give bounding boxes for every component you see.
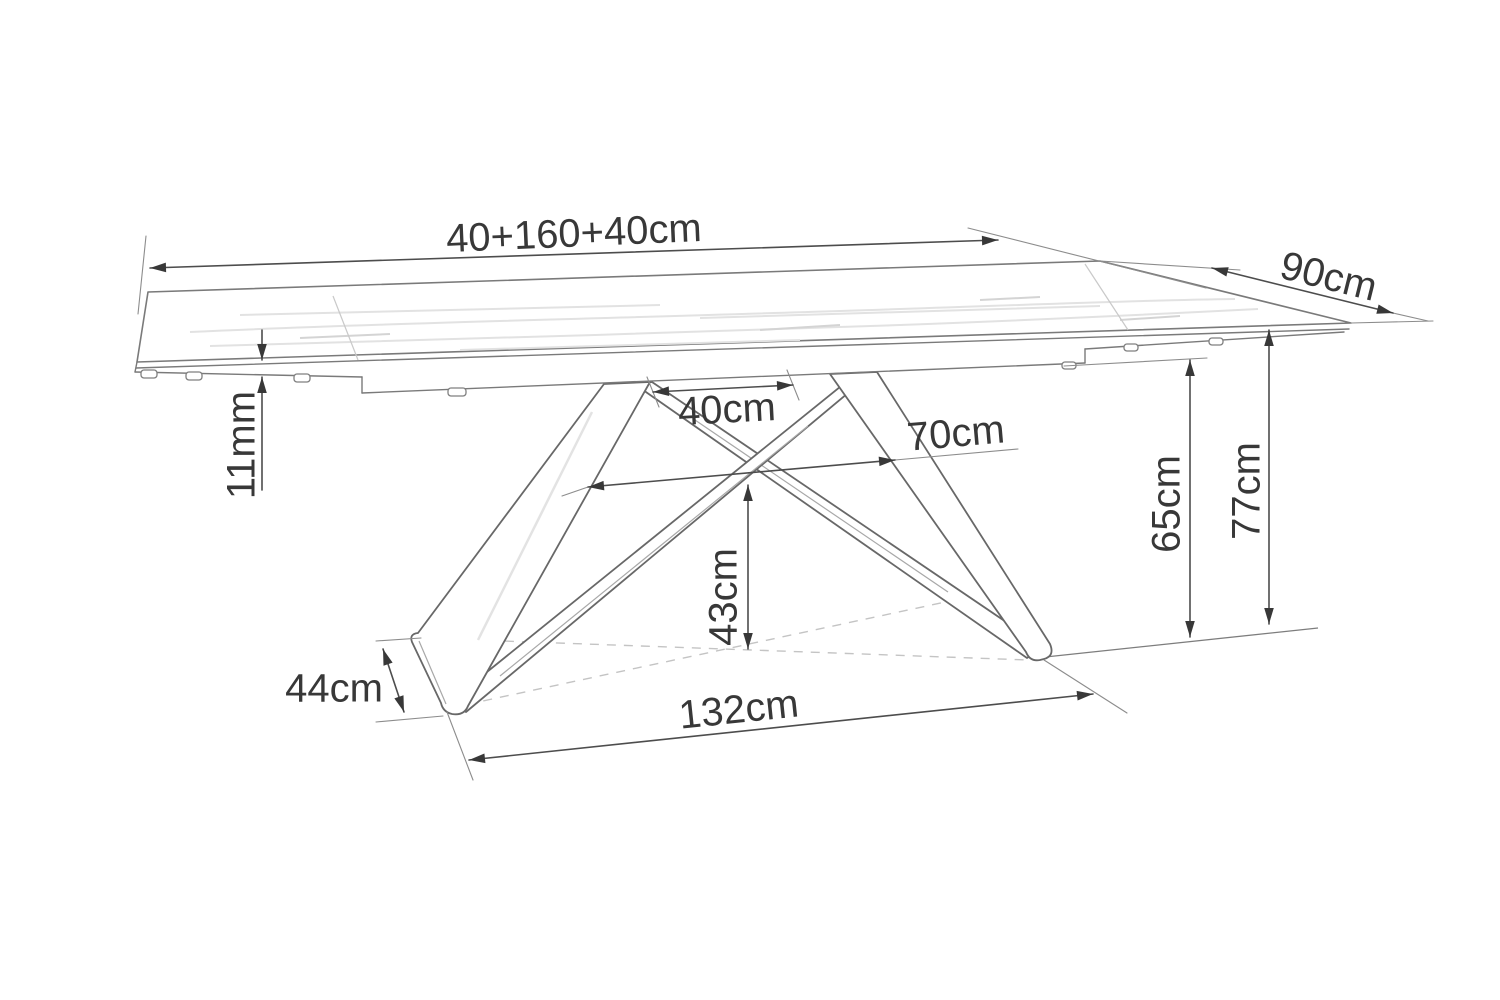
arrowhead-icon: [150, 263, 166, 273]
underside-tab: [1124, 344, 1138, 351]
arrowhead-icon: [1264, 608, 1274, 624]
dimension-label-table-height: 77cm: [1225, 442, 1269, 540]
arrowhead-icon: [257, 377, 267, 393]
arrowhead-icon: [383, 649, 393, 666]
dimension-label-foot-length: 44cm: [285, 667, 383, 711]
arrowhead-icon: [743, 485, 753, 501]
arrowhead-icon: [1077, 691, 1093, 701]
underside-tab: [448, 388, 466, 396]
extension-line: [376, 716, 443, 722]
dimension-label-leg-top-spread: 40cm: [677, 385, 777, 434]
underside-tab: [294, 374, 310, 382]
dimension-label-total-length: 40+160+40cm: [445, 206, 702, 261]
arrowhead-icon: [777, 381, 793, 391]
tabletop-surface: [137, 261, 1351, 362]
extension-line: [1351, 321, 1433, 323]
arrowhead-icon: [982, 236, 998, 246]
arrowhead-icon: [394, 695, 404, 712]
dimension-base-length: 132cm: [447, 660, 1127, 780]
table-dimension-drawing: 40+160+40cm90cm11mm40cm70cm43cm65cm77cm4…: [0, 0, 1500, 1000]
dimension-label-top-thickness: 11mm: [220, 391, 264, 499]
tabletop: [135, 261, 1351, 396]
arrowhead-icon: [1212, 267, 1229, 276]
drawing-canvas: 40+160+40cm90cm11mm40cm70cm43cm65cm77cm4…: [0, 0, 1500, 1000]
dimension-label-frame-height: 65cm: [1145, 455, 1189, 553]
dimension-frame-height: 65cm: [1064, 358, 1207, 637]
underside-tab: [1209, 338, 1223, 345]
extension-line: [1044, 660, 1127, 713]
floor-baseline: [1036, 628, 1318, 658]
left-leaf-underside: [135, 372, 362, 377]
dimension-label-depth: 90cm: [1276, 243, 1382, 309]
dimension-table-height: 77cm: [1225, 330, 1274, 624]
dimension-label-leg-mid-spread: 70cm: [905, 407, 1006, 459]
extension-line: [447, 712, 473, 780]
arrowhead-icon: [1185, 360, 1195, 376]
dimension-label-cross-height: 43cm: [702, 548, 746, 646]
extension-line: [1393, 313, 1428, 321]
arrowhead-icon: [469, 754, 485, 764]
arrowhead-icon: [1376, 304, 1393, 313]
arrowhead-icon: [1185, 621, 1195, 637]
underside-tab: [186, 372, 202, 380]
arrowhead-icon: [1264, 330, 1274, 346]
extension-line: [138, 236, 146, 314]
left-leg-sheet: [411, 382, 650, 714]
dimension-label-base-length: 132cm: [677, 681, 801, 737]
underside-tab: [141, 370, 157, 378]
